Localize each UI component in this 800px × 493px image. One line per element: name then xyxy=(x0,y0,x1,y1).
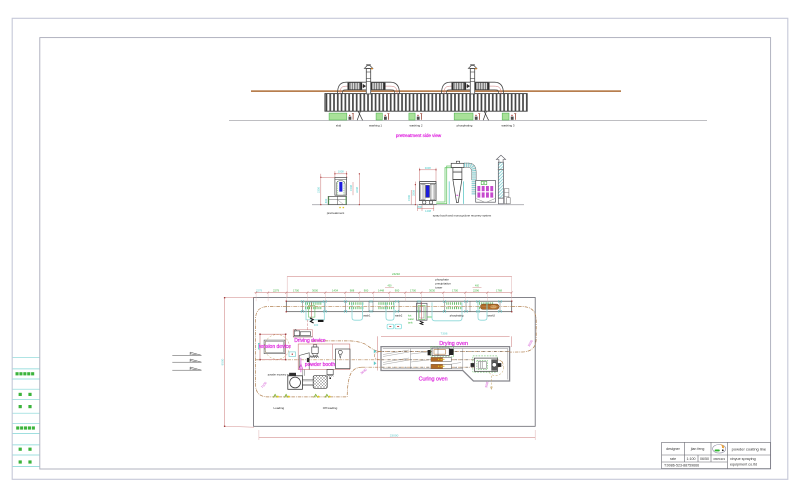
svg-text:washing 1: washing 1 xyxy=(369,124,382,128)
svg-text:1700: 1700 xyxy=(293,289,299,293)
svg-text:0805403: 0805403 xyxy=(713,457,725,461)
svg-text:1408: 1408 xyxy=(425,209,431,213)
svg-text:rate: rate xyxy=(670,457,676,461)
svg-text:400: 400 xyxy=(388,284,393,287)
svg-text:800: 800 xyxy=(324,198,328,203)
svg-text:1500: 1500 xyxy=(407,195,411,201)
svg-text:powder coating line: powder coating line xyxy=(732,446,767,451)
svg-text:2279: 2279 xyxy=(256,289,262,293)
svg-text:988: 988 xyxy=(350,289,355,293)
svg-text:8500: 8500 xyxy=(220,358,224,365)
svg-text:spray booth and monocyclone re: spray booth and monocyclone recovery sys… xyxy=(433,213,492,217)
svg-text:400: 400 xyxy=(475,284,480,287)
svg-text:tension device: tension device xyxy=(259,344,291,350)
svg-text:wash2: wash2 xyxy=(395,315,403,318)
svg-text:Curing oven: Curing oven xyxy=(419,377,448,383)
svg-text:jian feng: jian feng xyxy=(690,447,705,451)
svg-text:phosphating: phosphating xyxy=(457,124,473,128)
svg-text:1768: 1768 xyxy=(496,289,502,293)
svg-text:1434: 1434 xyxy=(332,289,338,293)
svg-text:powder booth: powder booth xyxy=(305,362,336,368)
svg-text:7306: 7306 xyxy=(441,332,448,336)
svg-text:1700: 1700 xyxy=(452,289,458,293)
svg-text:phosphating: phosphating xyxy=(450,314,464,317)
svg-text:skid: skid xyxy=(336,124,342,128)
svg-text:wash1: wash1 xyxy=(363,314,371,317)
svg-text:T:0086-523-88759666: T:0086-523-88759666 xyxy=(664,464,699,468)
svg-text:Drying oven: Drying oven xyxy=(439,341,468,347)
svg-text:2350: 2350 xyxy=(317,187,321,193)
svg-text:Loading: Loading xyxy=(274,406,285,410)
svg-text:Driving device: Driving device xyxy=(294,338,326,344)
svg-text:washing 3: washing 3 xyxy=(501,124,514,128)
svg-text:1700: 1700 xyxy=(410,289,416,293)
svg-text:pretreatment: pretreatment xyxy=(327,211,345,215)
svg-text:24292: 24292 xyxy=(392,272,400,276)
svg-text:2858: 2858 xyxy=(411,190,415,196)
svg-text:tower: tower xyxy=(435,286,442,290)
svg-text:1448: 1448 xyxy=(378,289,384,293)
svg-text:2296: 2296 xyxy=(473,289,479,293)
svg-text:Off loading: Off loading xyxy=(323,406,338,410)
svg-text:900: 900 xyxy=(364,289,369,293)
svg-text:3000: 3000 xyxy=(312,289,318,293)
svg-text:tank: tank xyxy=(408,321,413,324)
svg-text:2279: 2279 xyxy=(273,289,279,293)
svg-text:1008: 1008 xyxy=(338,170,344,174)
svg-text:1508: 1508 xyxy=(349,185,353,191)
svg-text:1:100: 1:100 xyxy=(687,457,696,461)
svg-text:equipment co.ltd: equipment co.ltd xyxy=(730,462,757,466)
svg-text:3008: 3008 xyxy=(425,166,431,170)
svg-text:washing 2: washing 2 xyxy=(409,124,422,128)
svg-text:wash3: wash3 xyxy=(488,314,496,317)
svg-text:900: 900 xyxy=(395,289,400,293)
svg-text:3208: 3208 xyxy=(355,187,359,193)
svg-text:23000: 23000 xyxy=(390,434,399,438)
svg-text:pretreatment side view: pretreatment side view xyxy=(396,133,442,138)
svg-text:800: 800 xyxy=(418,205,423,209)
svg-text:06/50: 06/50 xyxy=(700,457,709,461)
svg-text:xinyue spraying: xinyue spraying xyxy=(730,457,756,461)
svg-text:designer: designer xyxy=(666,447,681,451)
svg-text:400: 400 xyxy=(314,323,319,327)
